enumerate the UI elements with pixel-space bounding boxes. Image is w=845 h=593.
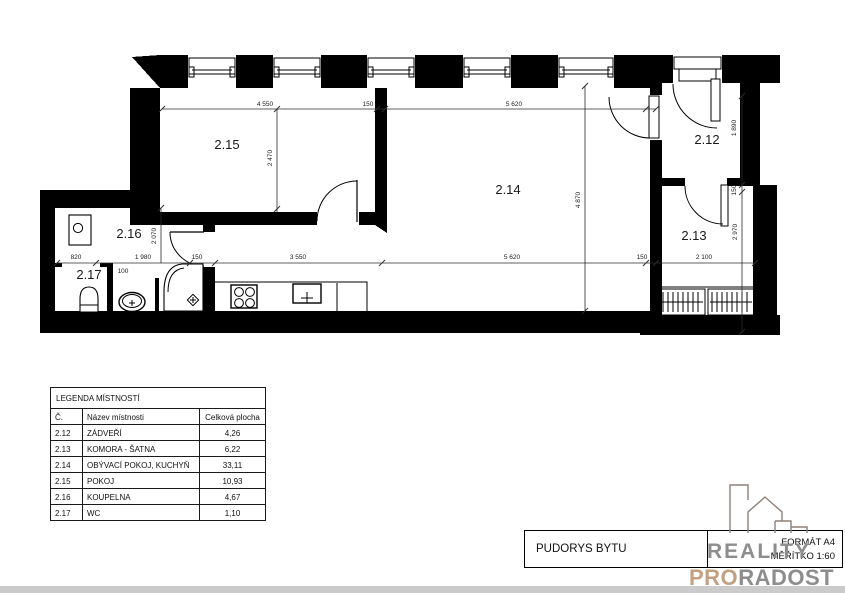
room-label-217: 2.17 xyxy=(76,267,101,282)
room-area: 4,67 xyxy=(200,489,265,504)
toilet-icon xyxy=(80,287,98,312)
stove-icon xyxy=(231,285,257,308)
room-label-214: 2.14 xyxy=(495,182,520,197)
room-name: POKOJ xyxy=(83,473,200,488)
room-number: 2.15 xyxy=(51,473,83,488)
scale-label: MĚŘÍTKO 1:60 xyxy=(708,550,835,564)
legend-header-name: Název místnosti xyxy=(83,409,200,424)
legend-row: 2.14 OBÝVACÍ POKOJ, KUCHYŇ 33,11 xyxy=(51,456,265,472)
dim-label: 150 xyxy=(363,101,374,108)
dim-label: 2 970 xyxy=(732,223,739,240)
legend-row: 2.13 KOMORA - ŠATNA 6,22 xyxy=(51,440,265,456)
dim-label: 2 470 xyxy=(267,149,274,166)
room-name: ZÁDVEŘÍ xyxy=(83,425,200,440)
dim-label: 3 550 xyxy=(290,254,307,261)
room-name: KOUPELNA xyxy=(83,489,200,504)
entrance-door-icon xyxy=(673,55,722,128)
dim-label: 5 620 xyxy=(504,254,521,261)
window-icon xyxy=(273,55,321,88)
dim-label: 4 550 xyxy=(257,101,274,108)
room-area: 1,10 xyxy=(200,505,265,520)
dim-label: 1 890 xyxy=(731,119,738,136)
room-name: OBÝVACÍ POKOJ, KUCHYŇ xyxy=(83,457,200,472)
dim-label: 4 870 xyxy=(575,191,582,208)
window-icon xyxy=(188,55,236,88)
dim-label: 5 620 xyxy=(506,101,523,108)
bottom-strip xyxy=(0,586,845,593)
room-number: 2.14 xyxy=(51,457,83,472)
title-block: PUDORYS BYTU FORMÁT A4 MĚŘÍTKO 1:60 xyxy=(524,530,843,568)
window-icon xyxy=(463,55,511,88)
legend-header-num: Č. xyxy=(51,409,83,424)
window-icon xyxy=(367,55,415,88)
window-icon xyxy=(558,55,614,88)
legend-header-row: Č. Název místnosti Celková plocha xyxy=(51,408,265,424)
room-area: 4,26 xyxy=(200,425,265,440)
room-area: 6,22 xyxy=(200,441,265,456)
room-area: 33,11 xyxy=(200,457,265,472)
legend-table: LEGENDA MÍSTNOSTÍ Č. Název místnosti Cel… xyxy=(50,387,266,521)
walls-layer xyxy=(40,55,780,335)
legend-row: 2.17 WC 1,10 xyxy=(51,504,265,520)
room-labels: 2.15 2.14 2.12 2.13 2.16 2.17 xyxy=(76,132,719,282)
room-name: KOMORA - ŠATNA xyxy=(83,441,200,456)
legend-header-area: Celková plocha xyxy=(200,409,265,424)
format-label: FORMÁT A4 xyxy=(708,536,835,550)
room-number: 2.12 xyxy=(51,425,83,440)
drawing-title: PUDORYS BYTU xyxy=(525,531,708,567)
dim-label: 150 xyxy=(731,184,738,195)
legend-row: 2.12 ZÁDVEŘÍ 4,26 xyxy=(51,424,265,440)
wardrobe-icon xyxy=(708,289,754,315)
bathroom-sink-icon xyxy=(119,293,145,312)
washing-machine-icon xyxy=(69,215,91,245)
legend-row: 2.15 POKOJ 10,93 xyxy=(51,472,265,488)
room-label-213: 2.13 xyxy=(681,228,706,243)
title-block-meta: FORMÁT A4 MĚŘÍTKO 1:60 xyxy=(708,531,842,567)
room-area: 10,93 xyxy=(200,473,265,488)
floorplan-page: 4 550 150 5 620 2 470 4 870 820 1 980 15… xyxy=(0,0,845,593)
room-number: 2.13 xyxy=(51,441,83,456)
room-label-215: 2.15 xyxy=(214,137,239,152)
dim-label: 820 xyxy=(71,254,82,261)
door-arc xyxy=(609,96,659,138)
legend-title: LEGENDA MÍSTNOSTÍ xyxy=(51,388,265,408)
shower-icon xyxy=(164,264,203,311)
room-name: WC xyxy=(83,505,200,520)
dimension-labels: 4 550 150 5 620 2 470 4 870 820 1 980 15… xyxy=(71,101,739,275)
wardrobe-icon xyxy=(655,287,753,315)
door-arc xyxy=(317,180,357,222)
dim-label: 150 xyxy=(192,254,203,261)
dim-label: 2 070 xyxy=(151,227,158,244)
room-label-216: 2.16 xyxy=(116,226,141,241)
room-label-212: 2.12 xyxy=(694,132,719,147)
room-number: 2.16 xyxy=(51,489,83,504)
door-arc xyxy=(685,185,728,226)
dim-label: 1 980 xyxy=(135,254,152,261)
room-number: 2.17 xyxy=(51,505,83,520)
dim-label: 150 xyxy=(637,254,648,261)
legend-row: 2.16 KOUPELNA 4,67 xyxy=(51,488,265,504)
dim-label: 2 100 xyxy=(696,254,713,261)
kitchen-sink-icon xyxy=(293,284,321,303)
dim-label: 100 xyxy=(118,268,129,275)
